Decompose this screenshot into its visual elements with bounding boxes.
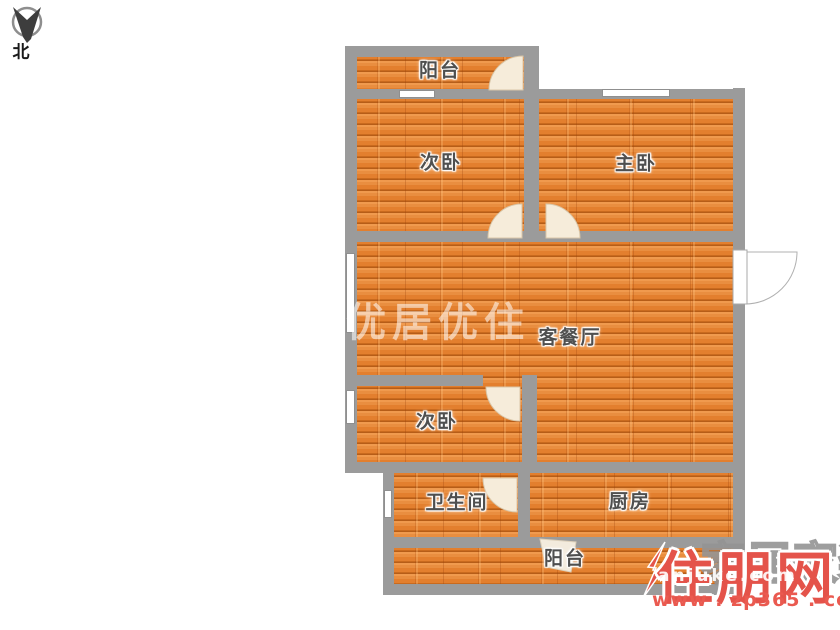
- wall: [733, 88, 745, 595]
- room-label-bathroom: 卫生间: [425, 488, 488, 515]
- wall: [345, 231, 745, 242]
- room-label-bedroom-mid-left: 次卧: [416, 407, 458, 434]
- wall: [345, 462, 745, 473]
- entrance-door-arc: [745, 252, 797, 304]
- watermark-white-text: anjuke.com: [658, 566, 798, 586]
- room-label-kitchen: 厨房: [609, 487, 651, 514]
- window-bedroom-left: [346, 390, 355, 424]
- floor-plan: 北 阳台 次卧 主卧 客餐厅 次卧 卫生间 厨房 阳台 优居优住 家居家装: [0, 0, 840, 630]
- window-balcony-bedroom: [399, 90, 435, 98]
- room-label-living-dining: 客餐厅: [538, 323, 601, 350]
- wall: [383, 462, 394, 595]
- north-label: 北: [13, 38, 30, 63]
- room-label-master-bedroom: 主卧: [615, 149, 657, 176]
- window-master-bedroom: [602, 89, 670, 97]
- wall: [345, 375, 483, 386]
- floor-living-dining: [348, 235, 740, 469]
- watermark-center: 优居优住: [346, 290, 530, 348]
- floor-bedrooms-top: [348, 92, 740, 238]
- watermark-site-url: www . zp365 . com: [652, 589, 840, 611]
- wall: [518, 462, 530, 548]
- room-label-balcony-bottom: 阳台: [544, 544, 586, 571]
- window-bathroom-left: [384, 490, 392, 518]
- wall: [524, 46, 539, 242]
- room-label-bedroom-top-left: 次卧: [420, 148, 462, 175]
- wall: [522, 375, 537, 473]
- room-label-balcony-top: 阳台: [419, 56, 461, 83]
